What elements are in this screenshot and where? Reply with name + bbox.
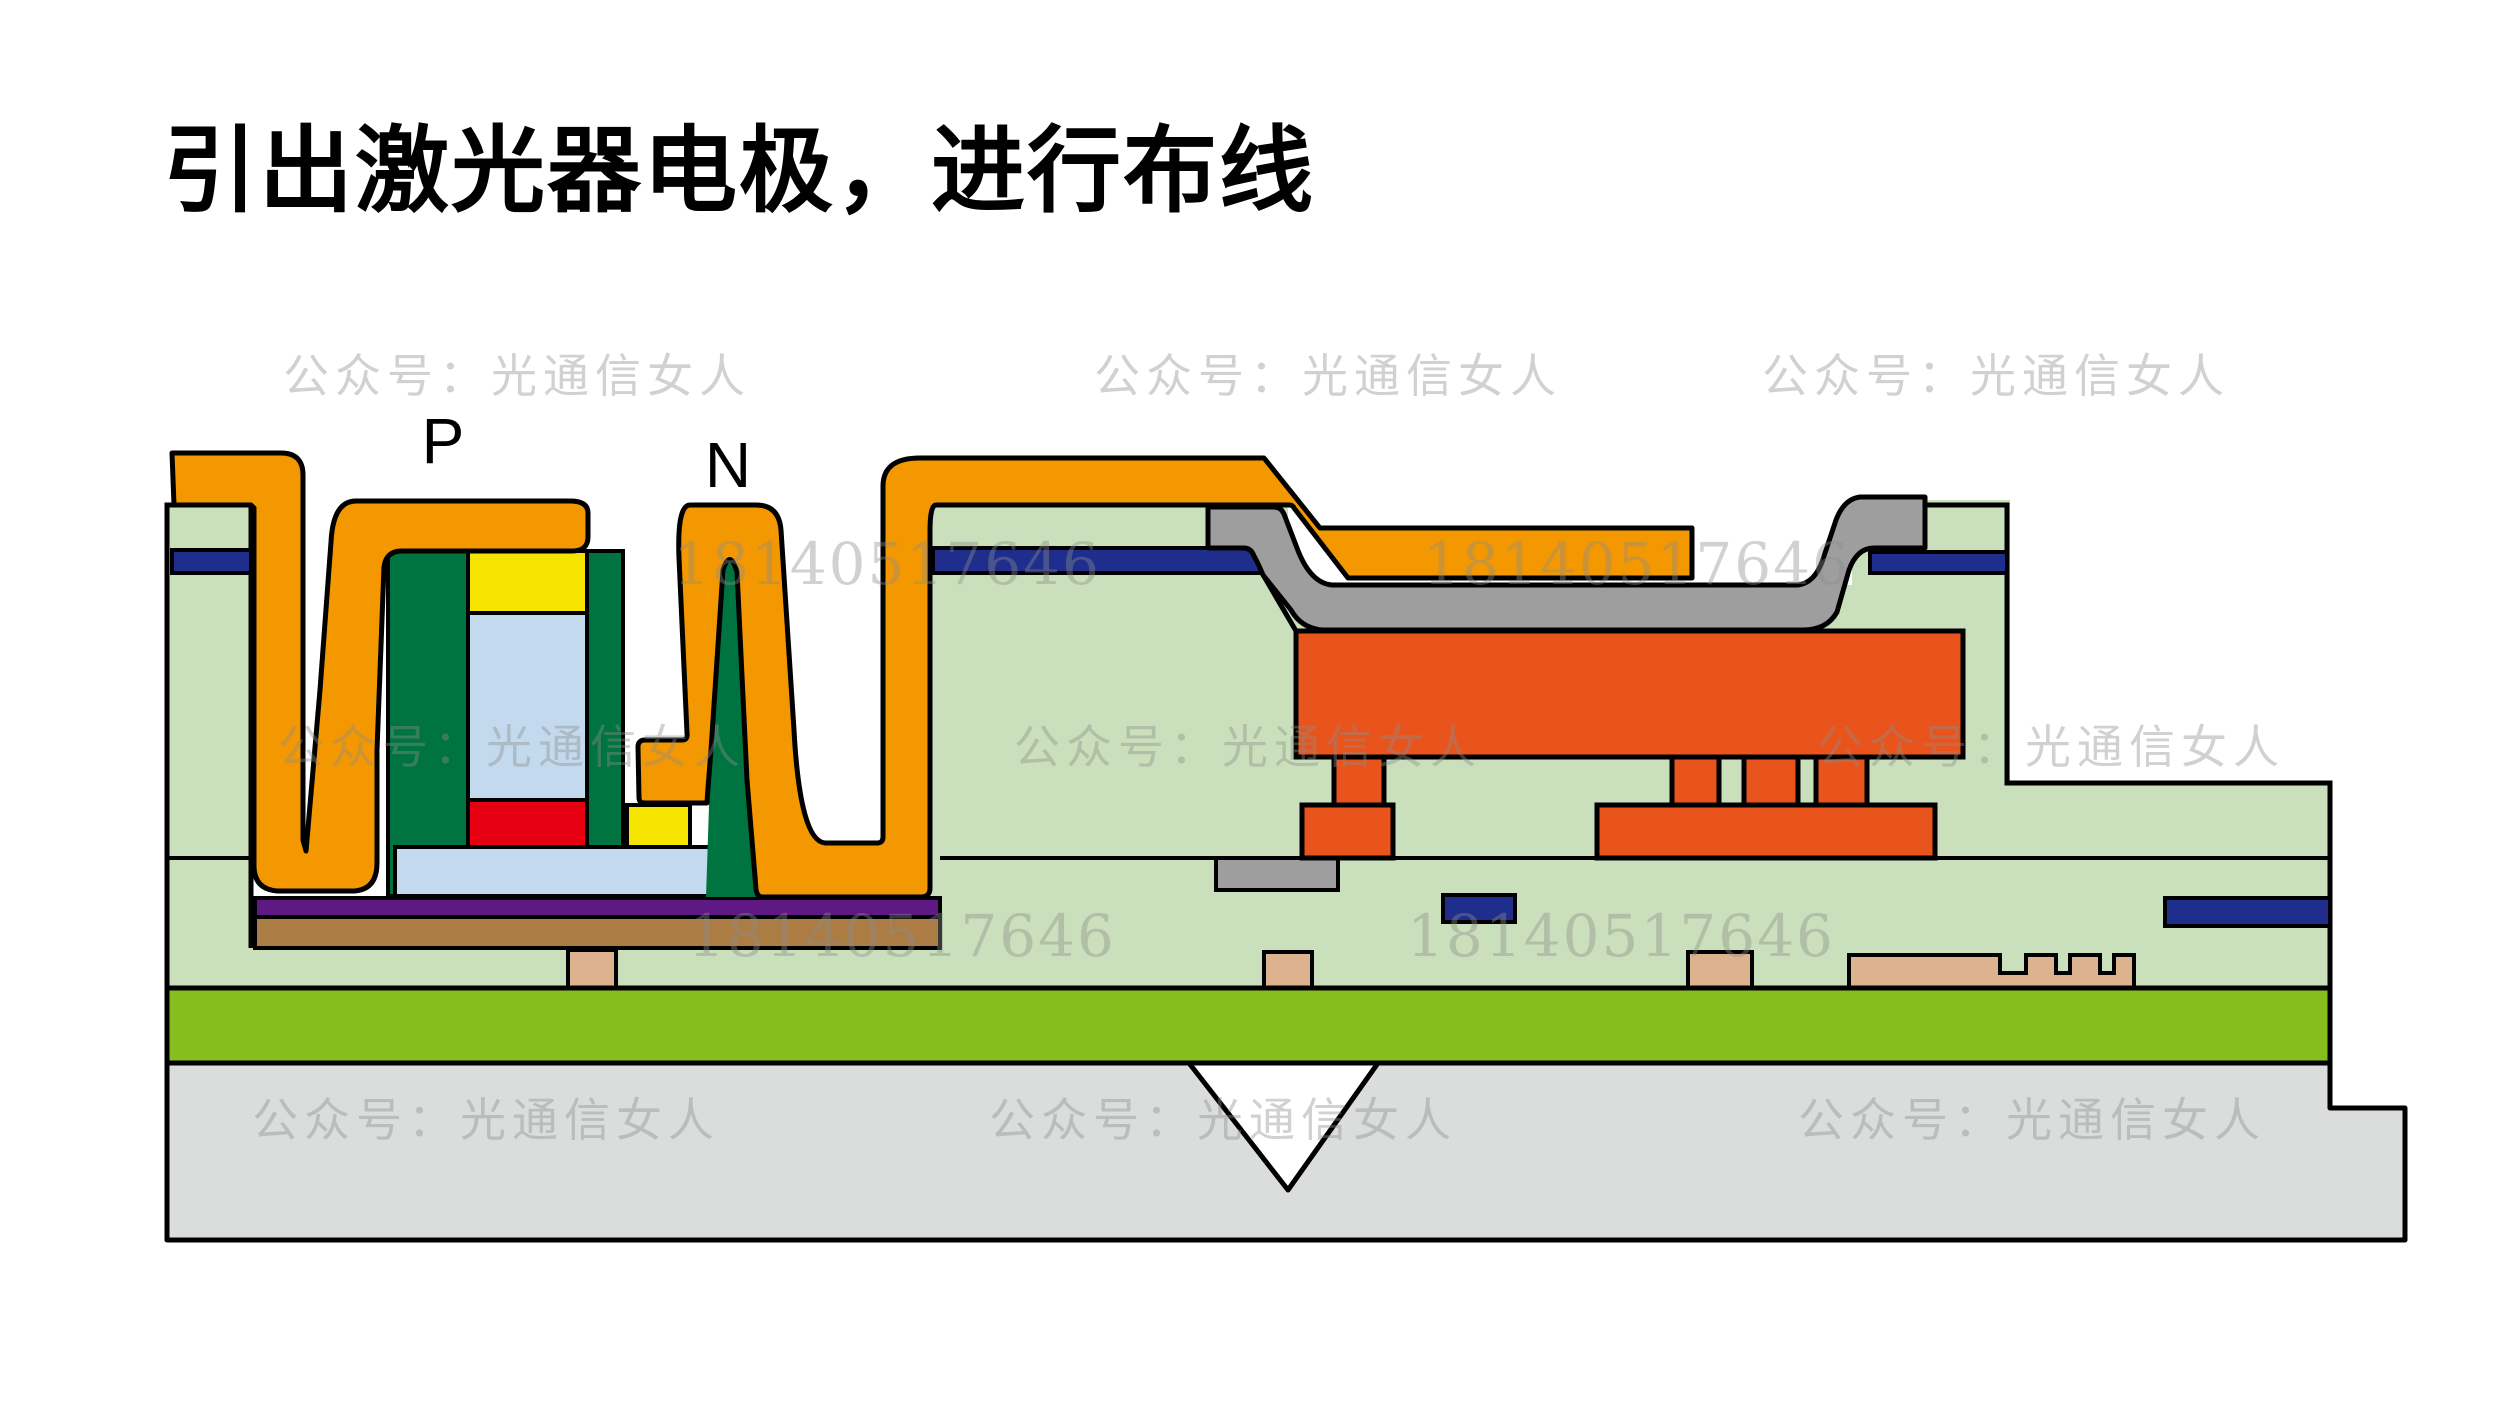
n-electrode-label: N [705,429,751,501]
gray-pad [1216,858,1338,890]
phone-watermark: 18140517646 [673,530,1101,598]
epi-left-column [167,505,251,988]
watermark-text: 公众号：光通信女人 [1798,1094,2266,1146]
tan-pad-1 [568,950,616,989]
slide: 公众号：光通信女人 公众号：光通信女人 公众号：光通信女人 公众号：光通信女人 … [0,0,2500,1406]
vermilion-leg-1 [1672,757,1719,805]
vermilion-pad-right [1597,805,1935,858]
watermark-text: 公众号：光通信女人 [283,350,751,402]
page-title: 引出激光器电极，进行布线 [163,118,1315,223]
vermilion-pad-left [1302,805,1393,858]
watermark-text: 公众号：光通信女人 [1014,721,1482,773]
waveguide-strip-right [2165,898,2330,926]
watermark-text: 公众号：光通信女人 [1094,350,1562,402]
mesa-cladding-right-wall [587,551,623,847]
tan-grating-comb [1849,955,2134,990]
watermark-text: 公众号：光通信女人 [1762,350,2230,402]
p-electrode-label: P [422,405,465,477]
waveguide-strip-left-column [172,550,251,573]
phone-watermark: 18140517646 [688,902,1116,970]
watermark-text: 公众号：光通信女人 [989,1094,1457,1146]
watermark-text: 公众号：光通信女人 [252,1094,720,1146]
box-layer [167,988,2330,1063]
mesa-cap-yellow [468,551,587,613]
vermilion-leg-2 [1744,757,1798,805]
mesa-base-contact [395,847,717,896]
mesa-active-red [468,800,587,847]
substrate [167,1063,2405,1240]
watermark-text: 公众号：光通信女人 [1817,721,2285,773]
phone-watermark: 18140517646 [1423,530,1851,598]
phone-watermark: 18140517646 [1407,902,1835,970]
laser-wiring-cross-section-diagram: 公众号：光通信女人 公众号：光通信女人 公众号：光通信女人 公众号：光通信女人 … [0,0,2500,1406]
waveguide-strip-under-metal [1870,552,2007,573]
n-contact-yellow-pad [627,805,690,847]
tan-pad-2 [1264,952,1312,989]
watermark-text: 公众号：光通信女人 [278,721,746,773]
